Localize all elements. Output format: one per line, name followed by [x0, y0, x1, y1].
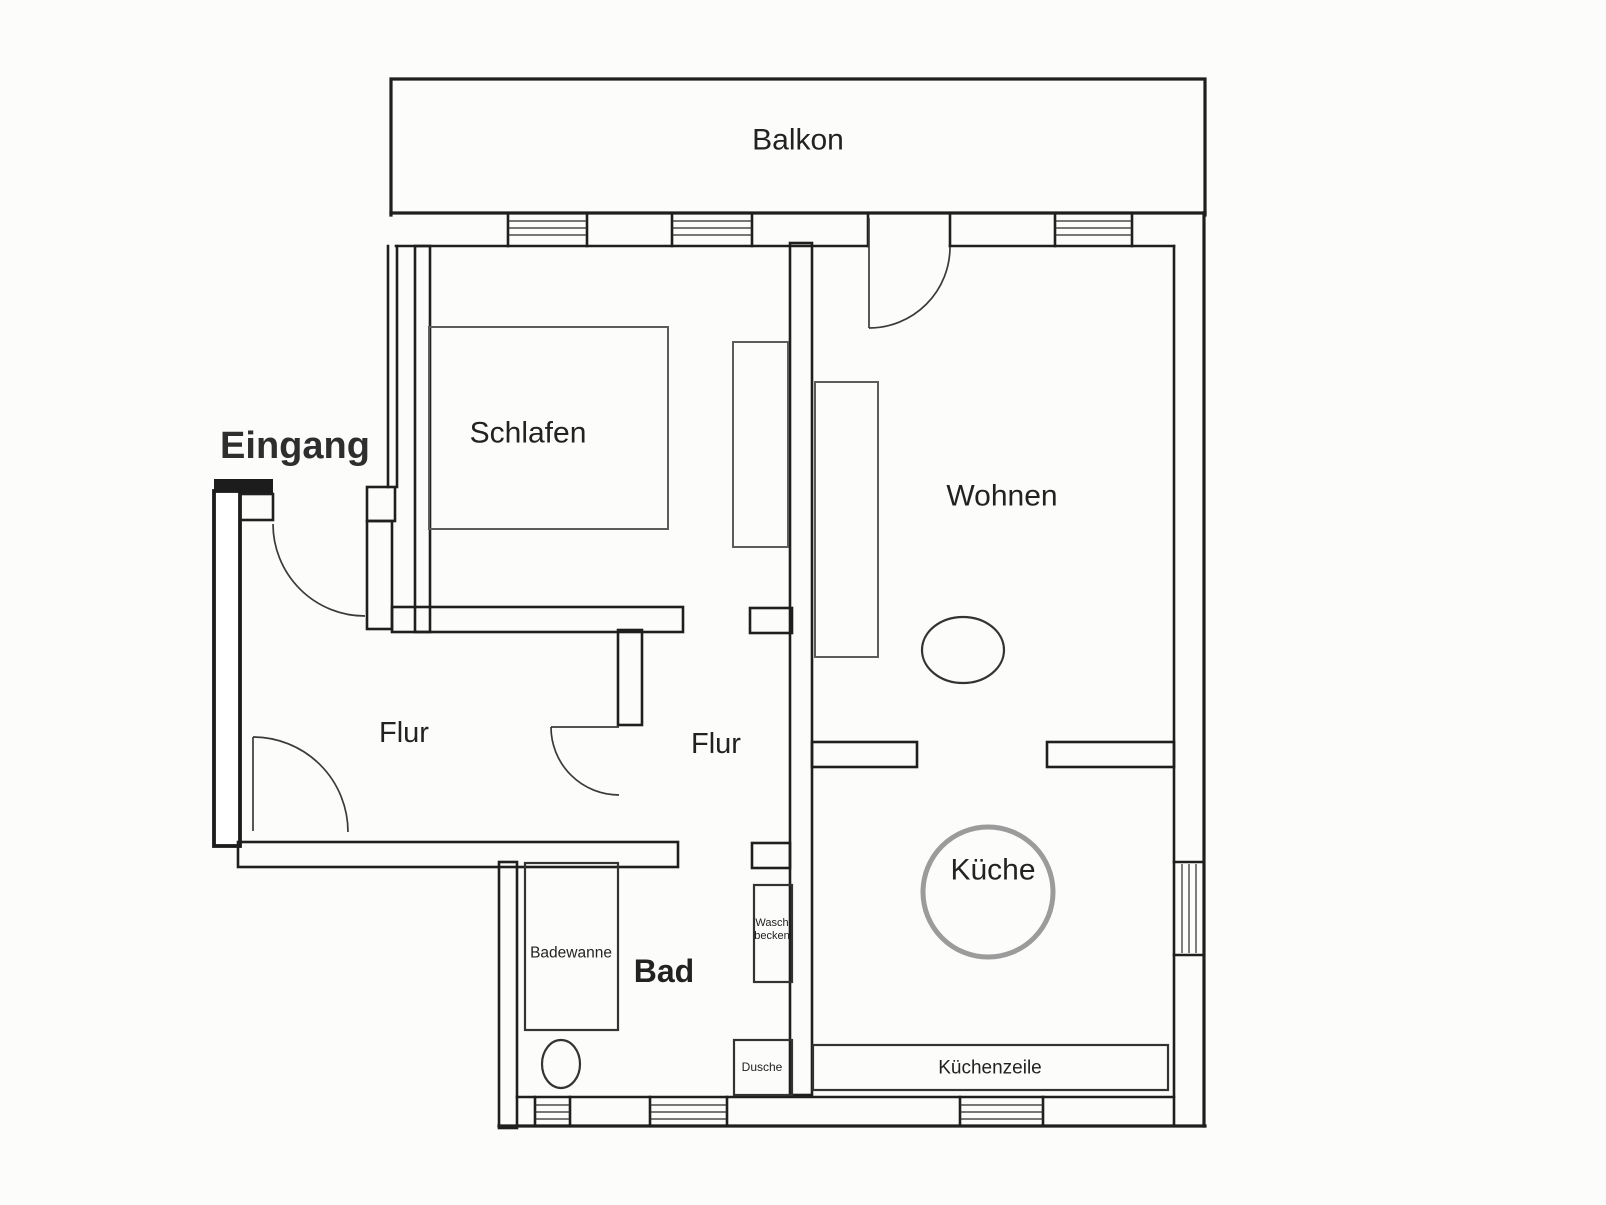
bad-left-exterior-wall	[499, 862, 517, 1128]
kuechenzeile-label: Küchenzeile	[938, 1058, 1042, 1079]
window-wohnen	[1055, 221, 1132, 235]
top-exterior-wall	[391, 213, 1205, 246]
living-table	[922, 617, 1004, 683]
left-exterior-wall-upper	[388, 246, 397, 487]
window-kueche-right	[1182, 864, 1196, 953]
entry-door-arc	[273, 524, 365, 616]
right-exterior-wall	[1174, 213, 1204, 1126]
sofa	[815, 382, 878, 657]
schlafen-left-wall	[415, 246, 430, 632]
window-bad-large	[650, 1105, 727, 1119]
flur-mitte-label: Flur	[691, 728, 741, 760]
floorplan-page: Balkon Eingang Schlafen Wohnen Flur Flur…	[0, 0, 1606, 1205]
window-schlafen-left	[508, 221, 587, 235]
flur-mitte-left-stub	[618, 630, 642, 725]
window-kueche-bottom	[960, 1105, 1043, 1119]
entry-landing-wall	[214, 479, 273, 846]
badewanne-label: Badewanne	[530, 945, 612, 962]
kueche-label: Küche	[950, 854, 1035, 887]
window-bad-small	[535, 1105, 570, 1119]
bad-label: Bad	[634, 953, 694, 989]
waschbecken-label-line1: Wasch	[755, 917, 788, 929]
dividing-wall	[790, 243, 812, 1095]
kueche-top-wall	[812, 742, 1174, 767]
window-schlafen-right	[672, 221, 752, 235]
flur-bottom-wall	[238, 842, 790, 868]
wardrobe	[733, 342, 788, 547]
dusche-label: Dusche	[742, 1060, 783, 1074]
flur-links-label: Flur	[379, 717, 429, 749]
wohnen-label: Wohnen	[946, 480, 1057, 513]
schlafen-bottom-wall	[392, 607, 683, 632]
bottom-exterior-wall	[499, 1097, 1205, 1126]
floorplan-drawing: Balkon Eingang Schlafen Wohnen Flur Flur…	[0, 0, 1606, 1205]
hall-door-arc	[253, 737, 348, 832]
kitchen-table-circle	[923, 827, 1053, 957]
flur-door-arc	[551, 727, 619, 795]
waschbecken-label-line2: becken	[754, 930, 789, 942]
balkon-label: Balkon	[752, 124, 844, 157]
schlafen-doorway-stub	[750, 608, 792, 633]
balcony-door-arc	[869, 218, 950, 328]
toilet	[542, 1040, 580, 1088]
schlafen-label: Schlafen	[470, 417, 587, 450]
eingang-label: Eingang	[220, 425, 370, 467]
